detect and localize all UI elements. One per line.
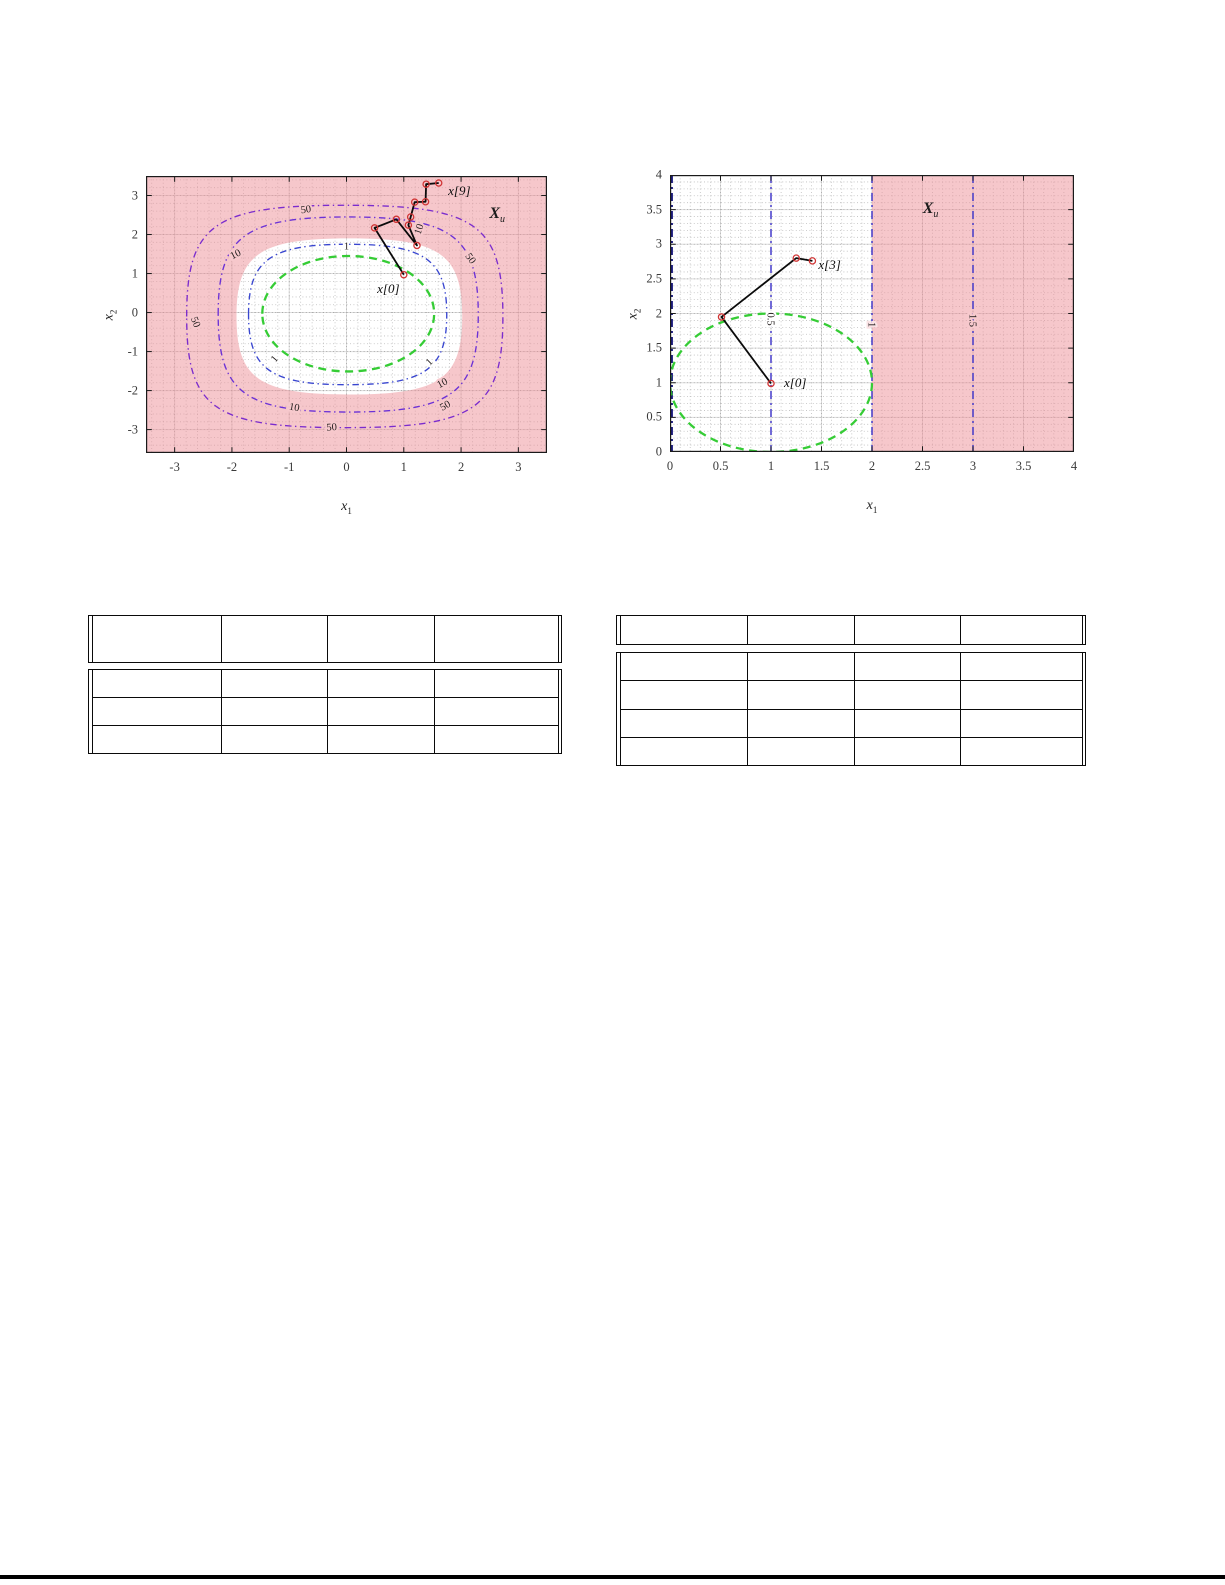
right-plot-canvas: 0.511.5 [670,175,1074,452]
table-cell [747,681,854,708]
x-tick-label: 1.5 [814,459,830,474]
x-tick-label: 1 [401,460,407,475]
page-bottom-rule [0,1575,1225,1579]
x-tick-label: 2.5 [915,459,931,474]
left-plot-canvas: 505050505010101010111 [146,176,547,453]
x-tick-label: 3.5 [1016,459,1032,474]
contour-label: 50 [300,204,312,216]
y-tick-label: 3 [132,188,138,203]
table-row [621,616,1082,644]
x-tick-label: -2 [227,460,237,475]
table-cell [960,738,1081,765]
x-tick-label: 2 [458,460,464,475]
table-cell [221,616,327,662]
x-axis-label: x1 [341,499,352,516]
y-tick-label: 4 [656,168,662,183]
table-cell [621,681,747,708]
contour-label: 10 [288,402,300,415]
table-cell [621,738,747,765]
table-cell [747,653,854,680]
table-cell [434,670,558,697]
contour-label: 1.5 [967,314,978,327]
table-cell [960,653,1081,680]
table-row [621,653,1082,680]
table-cell [327,616,434,662]
y-tick-label: 0 [132,305,138,320]
x-tick-label: 3 [970,459,976,474]
table-cell [93,670,221,697]
table-grid [620,653,1083,765]
table-cell [621,710,747,737]
x-tick-label: 0.5 [713,459,729,474]
contour-label: 1 [424,357,435,368]
table-cell [747,710,854,737]
y-tick-label: 1 [132,266,138,281]
y-tick-label: 1.5 [646,341,662,356]
table-cell [93,616,221,662]
table-cell [434,616,558,662]
left-table-header [88,615,562,663]
table-cell [747,738,854,765]
table-cell [960,710,1081,737]
y-tick-label: 3.5 [646,202,662,217]
table-row [621,737,1082,765]
table-cell [854,738,960,765]
trajectory-point-label: x[0] [377,281,399,297]
x-tick-label: -1 [284,460,294,475]
table-cell [327,698,434,725]
table-row [621,709,1082,737]
table-grid [620,616,1083,644]
table-cell [221,670,327,697]
x-tick-label: -3 [169,460,179,475]
table-row [93,725,558,753]
table-cell [327,726,434,753]
table-row [93,616,558,662]
table-cell [960,681,1081,708]
y-axis-label: x2 [102,309,119,320]
trajectory-point-label: x[3] [818,257,840,273]
x-tick-label: 0 [667,459,673,474]
table-cell [854,616,960,644]
x-tick-label: 4 [1071,459,1077,474]
table-cell [960,616,1081,644]
y-tick-label: -1 [128,344,138,359]
x-tick-label: 1 [768,459,774,474]
table-row [93,697,558,725]
table-cell [93,726,221,753]
y-tick-label: 3 [656,237,662,252]
page: 505050505010101010111-3-2-10123-3-2-1012… [0,0,1225,1585]
y-tick-label: -2 [128,383,138,398]
right-plot: 0.511.500.511.522.533.5400.511.522.533.5… [670,175,1074,452]
table-cell [327,670,434,697]
x-tick-label: 2 [869,459,875,474]
unsafe-set-label: Xu [489,205,505,225]
left-table-body [88,669,562,754]
table-cell [621,616,747,644]
y-tick-label: 2.5 [646,271,662,286]
table-grid [92,670,559,753]
right-table-header [616,615,1086,645]
y-tick-label: 2 [132,227,138,242]
contour-label: 1 [866,322,877,327]
table-cell [854,653,960,680]
table-row [621,680,1082,708]
y-tick-label: 0.5 [646,410,662,425]
table-cell [221,698,327,725]
contour-label: 1 [344,242,349,253]
left-plot: 505050505010101010111-3-2-10123-3-2-1012… [146,176,547,453]
trajectory-point-label: x[0] [784,375,806,391]
table-grid [92,616,559,662]
trajectory-point-label: x[9] [448,183,470,199]
contour-label: 50 [326,422,337,434]
contour-label: 0.5 [765,312,776,325]
x-axis-label: x1 [867,498,878,515]
y-axis-label: x2 [626,308,643,319]
table-cell [434,726,558,753]
y-tick-label: 1 [656,375,662,390]
y-tick-label: -3 [128,422,138,437]
unsafe-set-label: Xu [923,200,939,220]
table-cell [621,653,747,680]
table-cell [221,726,327,753]
x-tick-label: 0 [343,460,349,475]
table-cell [854,710,960,737]
table-cell [747,616,854,644]
y-tick-label: 0 [656,445,662,460]
y-tick-label: 2 [656,306,662,321]
table-row [93,670,558,697]
table-cell [93,698,221,725]
x-tick-label: 3 [515,460,521,475]
right-table-body [616,652,1086,766]
table-cell [854,681,960,708]
table-cell [434,698,558,725]
